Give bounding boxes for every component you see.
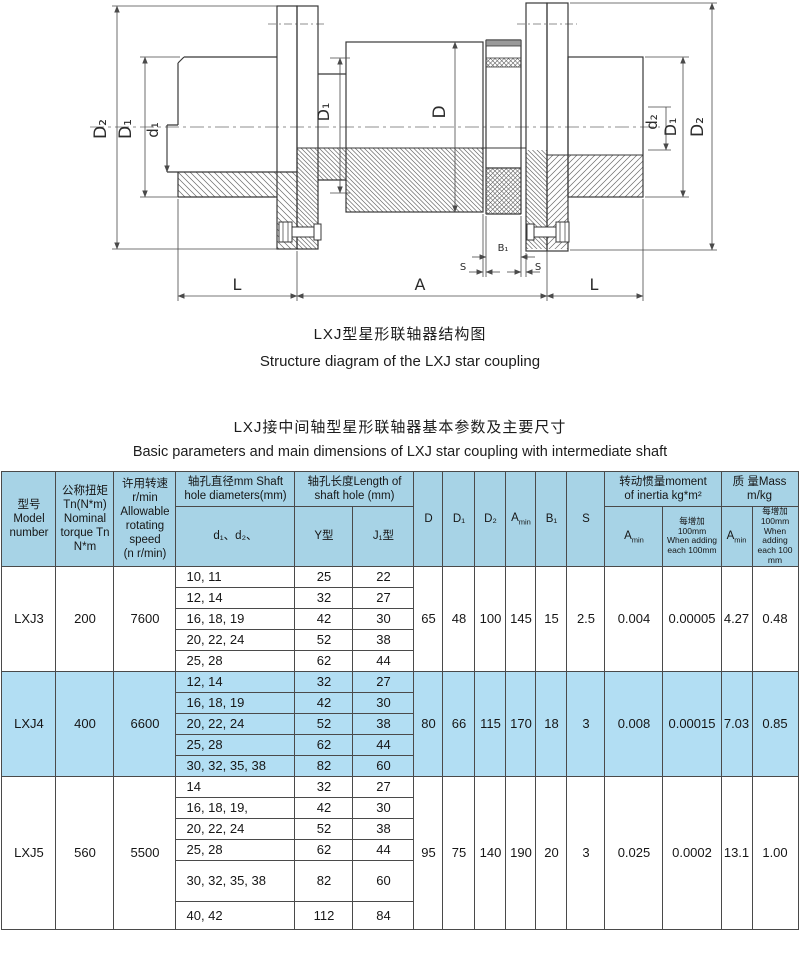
cell-mass-add: 0.48: [752, 566, 798, 671]
cell-B1: 15: [536, 566, 567, 671]
cell-y-length: 32: [295, 671, 353, 692]
cell-inertia-amin: 0.004: [605, 566, 663, 671]
col-header-speed: 许用转速 r/min Allowable rotating speed (n r…: [114, 472, 176, 567]
cell-D2: 115: [475, 671, 506, 776]
cell-torque: 400: [56, 671, 114, 776]
col-subheader-inertia-add100: 每增加100mm When adding each 100mm: [663, 507, 721, 567]
cell-j-length: 60: [353, 860, 414, 901]
cell-inertia-amin: 0.025: [605, 776, 663, 929]
cell-j-length: 22: [353, 566, 414, 587]
cell-Amin: 145: [506, 566, 536, 671]
dim-label-L-left: L: [233, 275, 242, 294]
cell-D: 65: [414, 566, 443, 671]
cell-bores: 14: [176, 776, 295, 797]
cell-y-length: 42: [295, 608, 353, 629]
cell-bores: 12, 14: [176, 671, 295, 692]
cell-D2: 140: [475, 776, 506, 929]
table-title-en: Basic parameters and main dimensions of …: [0, 444, 800, 460]
catalog-page: D₂ D₁ d₁ D₁ D d₂ D₁ D₂ L A L B₁ S S LXJ型…: [0, 0, 800, 959]
cell-j-length: 27: [353, 776, 414, 797]
cell-y-length: 62: [295, 839, 353, 860]
coupling-cross-section: D₂ D₁ d₁ D₁ D d₂ D₁ D₂ L A L B₁ S S: [0, 0, 800, 312]
dim-label-d1-mid: D₁: [314, 103, 333, 122]
col-subheader-j1-type: J₁型: [353, 507, 414, 567]
col-header-shaft-hole-length: 轴孔长度Length of shaft hole (mm): [295, 472, 414, 507]
cell-bores: 25, 28: [176, 839, 295, 860]
col-subheader-mass-add100: 每增加100mm When adding each 100 mm: [752, 507, 798, 567]
cell-y-length: 62: [295, 734, 353, 755]
col-header-Amin: Amin: [506, 472, 536, 567]
cell-D: 95: [414, 776, 443, 929]
cell-S: 3: [567, 671, 605, 776]
cell-D1: 48: [443, 566, 475, 671]
cell-j-length: 44: [353, 734, 414, 755]
col-header-D2: D₂: [475, 472, 506, 567]
cell-y-length: 112: [295, 901, 353, 929]
col-header-S: S: [567, 472, 605, 567]
cell-y-length: 42: [295, 692, 353, 713]
col-header-D1: D₁: [443, 472, 475, 567]
cell-j-length: 27: [353, 671, 414, 692]
cell-mass-add: 1.00: [752, 776, 798, 929]
cell-inertia-add: 0.0002: [663, 776, 721, 929]
centerline: [90, 24, 660, 127]
cell-B1: 18: [536, 671, 567, 776]
cell-y-length: 52: [295, 629, 353, 650]
cell-D1: 66: [443, 671, 475, 776]
cell-bores: 12, 14: [176, 587, 295, 608]
cell-bores: 16, 18, 19: [176, 692, 295, 713]
col-header-mass: 质 量Mass m/kg: [721, 472, 798, 507]
cell-speed: 5500: [114, 776, 176, 929]
table-row-highlighted: LXJ4 400 6600 12, 14 32 27 80 66 115 170…: [2, 671, 798, 692]
cell-y-length: 32: [295, 587, 353, 608]
cell-bores: 16, 18, 19,: [176, 797, 295, 818]
cell-bores: 10, 11: [176, 566, 295, 587]
cell-mass-amin: 13.1: [721, 776, 752, 929]
cell-y-length: 52: [295, 713, 353, 734]
dim-label-bore-left: d₁: [144, 122, 162, 138]
cell-bores: 25, 28: [176, 650, 295, 671]
cell-bores: 30, 32, 35, 38: [176, 860, 295, 901]
cell-D1: 75: [443, 776, 475, 929]
cell-model: LXJ4: [2, 671, 56, 776]
cell-bores: 20, 22, 24: [176, 818, 295, 839]
cell-j-length: 38: [353, 818, 414, 839]
parameters-table: 型号 Model number 公称扭矩 Tn(N*m) Nominal tor…: [1, 471, 798, 930]
cell-j-length: 27: [353, 587, 414, 608]
cell-y-length: 82: [295, 755, 353, 776]
cell-j-length: 60: [353, 755, 414, 776]
table-row: LXJ3 200 7600 10, 11 25 22 65 48 100 145…: [2, 566, 798, 587]
table-title-zh: LXJ接中间轴型星形联轴器基本参数及主要尺寸: [0, 416, 800, 437]
cell-model: LXJ3: [2, 566, 56, 671]
col-header-model: 型号 Model number: [2, 472, 56, 567]
cell-y-length: 62: [295, 650, 353, 671]
dim-label-bore-right: d₂: [643, 114, 661, 130]
col-subheader-inertia-amin: Amin: [605, 507, 663, 567]
col-header-D: D: [414, 472, 443, 567]
dim-label-d1-right: D₁: [661, 118, 680, 137]
cell-B1: 20: [536, 776, 567, 929]
dim-label-d1-left: D₁: [116, 119, 136, 139]
table-row: LXJ5 560 5500 14 32 27 95 75 140 190 20 …: [2, 776, 798, 797]
dim-label-d2-right: D₂: [688, 117, 708, 137]
table-header: 型号 Model number 公称扭矩 Tn(N*m) Nominal tor…: [2, 472, 798, 567]
cell-j-length: 30: [353, 797, 414, 818]
cell-j-length: 30: [353, 692, 414, 713]
cell-S: 2.5: [567, 566, 605, 671]
cell-Amin: 190: [506, 776, 536, 929]
col-header-torque: 公称扭矩 Tn(N*m) Nominal torque Tn N*m: [56, 472, 114, 567]
cell-bores: 30, 32, 35, 38: [176, 755, 295, 776]
cell-y-length: 25: [295, 566, 353, 587]
cell-speed: 7600: [114, 566, 176, 671]
cell-S: 3: [567, 776, 605, 929]
cell-inertia-add: 0.00015: [663, 671, 721, 776]
cell-torque: 560: [56, 776, 114, 929]
dim-label-s-left: S: [460, 262, 466, 273]
cell-bores: 16, 18, 19: [176, 608, 295, 629]
cell-mass-amin: 7.03: [721, 671, 752, 776]
cell-speed: 6600: [114, 671, 176, 776]
dim-label-A: A: [415, 275, 426, 294]
cell-Amin: 170: [506, 671, 536, 776]
cell-j-length: 30: [353, 608, 414, 629]
cell-y-length: 42: [295, 797, 353, 818]
cell-y-length: 52: [295, 818, 353, 839]
col-header-shaft-hole-diameter: 轴孔直径mm Shaft hole diameters(mm): [176, 472, 295, 507]
cell-D: 80: [414, 671, 443, 776]
cell-bores: 20, 22, 24: [176, 629, 295, 650]
cell-mass-amin: 4.27: [721, 566, 752, 671]
cell-j-length: 38: [353, 713, 414, 734]
col-header-B1: B₁: [536, 472, 567, 567]
col-subheader-d1-d2: d₁、d₂、: [176, 507, 295, 567]
cell-y-length: 82: [295, 860, 353, 901]
col-subheader-y-type: Y型: [295, 507, 353, 567]
dim-label-d-mid: D: [430, 105, 450, 118]
cell-bores: 25, 28: [176, 734, 295, 755]
dim-label-L-right: L: [590, 275, 599, 294]
cell-j-length: 38: [353, 629, 414, 650]
drawing-caption-zh: LXJ型星形联轴器结构图: [0, 323, 800, 344]
col-header-inertia: 转动惯量moment of inertia kg*m²: [605, 472, 721, 507]
cell-inertia-add: 0.00005: [663, 566, 721, 671]
cell-mass-add: 0.85: [752, 671, 798, 776]
cell-inertia-amin: 0.008: [605, 671, 663, 776]
cell-bores: 20, 22, 24: [176, 713, 295, 734]
cell-j-length: 44: [353, 650, 414, 671]
section-hatching: [178, 148, 643, 249]
cell-torque: 200: [56, 566, 114, 671]
col-subheader-mass-amin: Amin: [721, 507, 752, 567]
drawing-caption-en: Structure diagram of the LXJ star coupli…: [0, 353, 800, 370]
dim-label-s-right: S: [535, 262, 541, 273]
dim-label-d2-left: D₂: [91, 119, 111, 139]
structure-diagram: D₂ D₁ d₁ D₁ D d₂ D₁ D₂ L A L B₁ S S: [0, 0, 800, 317]
dim-label-b1: B₁: [498, 243, 509, 254]
cell-bores: 40, 42: [176, 901, 295, 929]
cell-D2: 100: [475, 566, 506, 671]
cell-j-length: 44: [353, 839, 414, 860]
cell-y-length: 32: [295, 776, 353, 797]
cell-model: LXJ5: [2, 776, 56, 929]
cell-j-length: 84: [353, 901, 414, 929]
